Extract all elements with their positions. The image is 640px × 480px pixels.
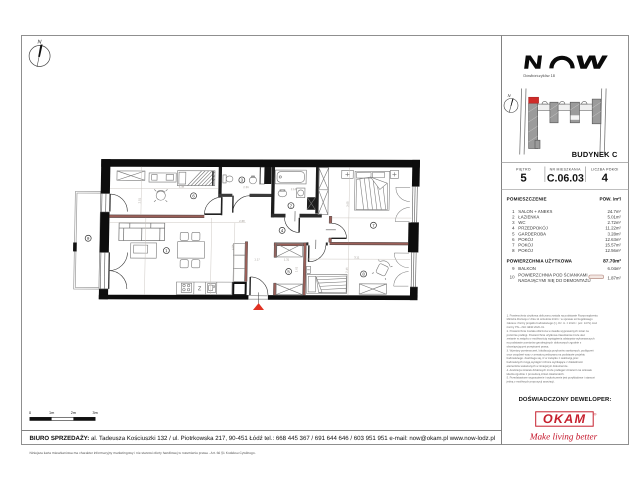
svg-text:POWIERZCHNIA POD ŚCIANKAMI: POWIERZCHNIA POD ŚCIANKAMI [518, 272, 587, 277]
svg-text:W: W [575, 52, 609, 73]
svg-text:zakresu i formy projektu budow: zakresu i formy projektu budowlanego (t.… [507, 322, 598, 325]
svg-text:BIURO SPRZEDAŻY: al. Tadeusza: BIURO SPRZEDAŻY: al. Tadeusza Kościuszki… [30, 434, 496, 442]
svg-text:POWIERZCHNIA UŻYTKOWA: POWIERZCHNIA UŻYTKOWA [507, 259, 573, 264]
svg-text:5: 5 [520, 173, 527, 185]
svg-text:3. Wymiary pomieszczeń, lokali: 3. Wymiary pomieszczeń, lokalizacja przy… [507, 348, 595, 352]
svg-text:obowiązującymi przepisami praw: obowiązującymi przepisami prawa. [507, 346, 550, 349]
svg-text:Ministra Rozwoju z dnia 11 wrz: Ministra Rozwoju z dnia 11 września 2020… [507, 317, 593, 321]
svg-text:OKAM: OKAM [543, 412, 586, 426]
svg-text:3.11: 3.11 [354, 255, 360, 259]
svg-text:BUDYNEK C: BUDYNEK C [572, 150, 618, 159]
svg-text:POKÓJ: POKÓJ [518, 243, 533, 248]
svg-text:3.28m²: 3.28m² [607, 231, 621, 236]
svg-text:2. Powierzchnia została oblicz: 2. Powierzchnia została obliczona w świe… [507, 329, 590, 333]
svg-text:PIĘTRO: PIĘTRO [516, 168, 531, 172]
svg-text:1m: 1m [49, 411, 54, 415]
svg-text:10: 10 [510, 275, 515, 280]
svg-text:N: N [38, 40, 42, 46]
svg-text:poziomie podłogi. Powierzchnia: poziomie podłogi. Powierzchnia użytkowa … [507, 334, 586, 337]
svg-text:klienta zgodnie z procedurą zm: klienta zgodnie z procedurą zmian lokato… [507, 373, 565, 376]
svg-text:POKÓJ: POKÓJ [518, 248, 533, 253]
svg-text:4: 4 [602, 173, 609, 185]
svg-text:5.01m²: 5.01m² [607, 215, 621, 220]
svg-text:2.16: 2.16 [291, 187, 297, 191]
svg-text:12.56m²: 12.56m² [605, 248, 621, 253]
svg-text:ŁAZIENKA: ŁAZIENKA [518, 215, 539, 220]
svg-text:POMIESZCZENIE: POMIESZCZENIE [507, 196, 547, 201]
svg-text:elementów wskazanych w niniejs: elementów wskazanych w niniejszym dokume… [507, 364, 569, 368]
svg-text:2.46: 2.46 [345, 267, 349, 273]
svg-text:2.72m²: 2.72m² [607, 220, 621, 225]
svg-text:WC: WC [518, 220, 525, 225]
svg-text:PRZEDPOKÓJ: PRZEDPOKÓJ [518, 226, 547, 231]
svg-text:1.17: 1.17 [254, 257, 260, 261]
svg-text:SALON + ANEKS: SALON + ANEKS [518, 209, 552, 214]
svg-text:POW. /m²/: POW. /m²/ [600, 196, 622, 201]
svg-text:1.31: 1.31 [284, 257, 290, 261]
svg-text:1.87m²: 1.87m² [607, 276, 621, 281]
svg-text:NADAJĄCYMI SIĘ DO DEMONTAŻU: NADAJĄCYMI SIĘ DO DEMONTAŻU [518, 278, 590, 283]
svg-text:2.36: 2.36 [243, 185, 249, 189]
svg-text:Niniejsza karta mieszkaniowa m: Niniejsza karta mieszkaniowa ma charakte… [30, 451, 256, 455]
svg-text:2m: 2m [71, 411, 76, 415]
svg-text:DOŚWIADCZONY DEWELOPER:: DOŚWIADCZONY DEWELOPER: [519, 395, 612, 403]
svg-text:11.22m²: 11.22m² [605, 226, 621, 231]
svg-text:normy PN—ISO 9836:2020-01.: normy PN—ISO 9836:2020-01. [507, 326, 545, 329]
svg-text:jedną z możliwych propozycji a: jedną z możliwych propozycji aranżacji. [506, 381, 555, 384]
svg-text:budowlanego. Zastrzega się, iż: budowlanego. Zastrzega się, iż w związku… [507, 357, 579, 360]
svg-text:N: N [508, 93, 511, 98]
svg-text:GARDEROBA: GARDEROBA [518, 231, 546, 236]
svg-text:1. Powierzchnia użytkowa oblic: 1. Powierzchnia użytkowa obliczona zosta… [507, 314, 599, 317]
svg-text:6.04m²: 6.04m² [607, 266, 621, 271]
svg-text:1.61: 1.61 [294, 266, 298, 272]
svg-text:oraz urządzeń wraz z armaturą: oraz urządzeń wraz z armaturą wskazana n… [507, 352, 586, 356]
svg-text:87.70m²: 87.70m² [603, 259, 621, 265]
svg-text:4. Aranżacja ścianek działowyc: 4. Aranżacja ścianek działowych może pod… [507, 368, 593, 372]
svg-text:budowlanych mogą wystąpić różn: budowlanych mogą wystąpić różnice wynika… [507, 360, 584, 364]
svg-text:24.7m²: 24.7m² [607, 209, 621, 214]
svg-text:5.36: 5.36 [179, 185, 185, 189]
svg-text:Make living better: Make living better [529, 431, 598, 441]
svg-text:zmianie w związku z możliwości: zmianie w związku z możliwością wystąpie… [507, 337, 595, 341]
svg-text:3m: 3m [93, 411, 98, 415]
svg-text:4.88: 4.88 [231, 244, 235, 250]
svg-text:NR MIESZKANIA: NR MIESZKANIA [550, 168, 581, 172]
svg-text:na podstawie pomiarów geodezyj: na podstawie pomiarów geodezyjnych dokon… [507, 341, 582, 345]
svg-text:N: N [522, 52, 544, 73]
svg-text:Dowborczyków 18: Dowborczyków 18 [523, 73, 555, 78]
svg-text:2.30: 2.30 [239, 219, 245, 223]
svg-text:LICZBA POKOI: LICZBA POKOI [591, 168, 619, 172]
svg-text:5. Przedstawione wyposażenie i: 5. Przedstawione wyposażenie i wykończen… [507, 376, 596, 380]
svg-text:0: 0 [29, 411, 31, 415]
svg-text:®: ® [594, 413, 597, 417]
svg-text:2.51: 2.51 [137, 197, 141, 203]
svg-text:C.06.03: C.06.03 [547, 173, 584, 185]
svg-text:3.65: 3.65 [345, 201, 349, 207]
svg-text:POKÓJ: POKÓJ [518, 237, 533, 242]
svg-text:BALKON: BALKON [518, 266, 536, 271]
svg-text:12.63m²: 12.63m² [605, 237, 621, 242]
svg-text:15.57m²: 15.57m² [605, 243, 621, 248]
